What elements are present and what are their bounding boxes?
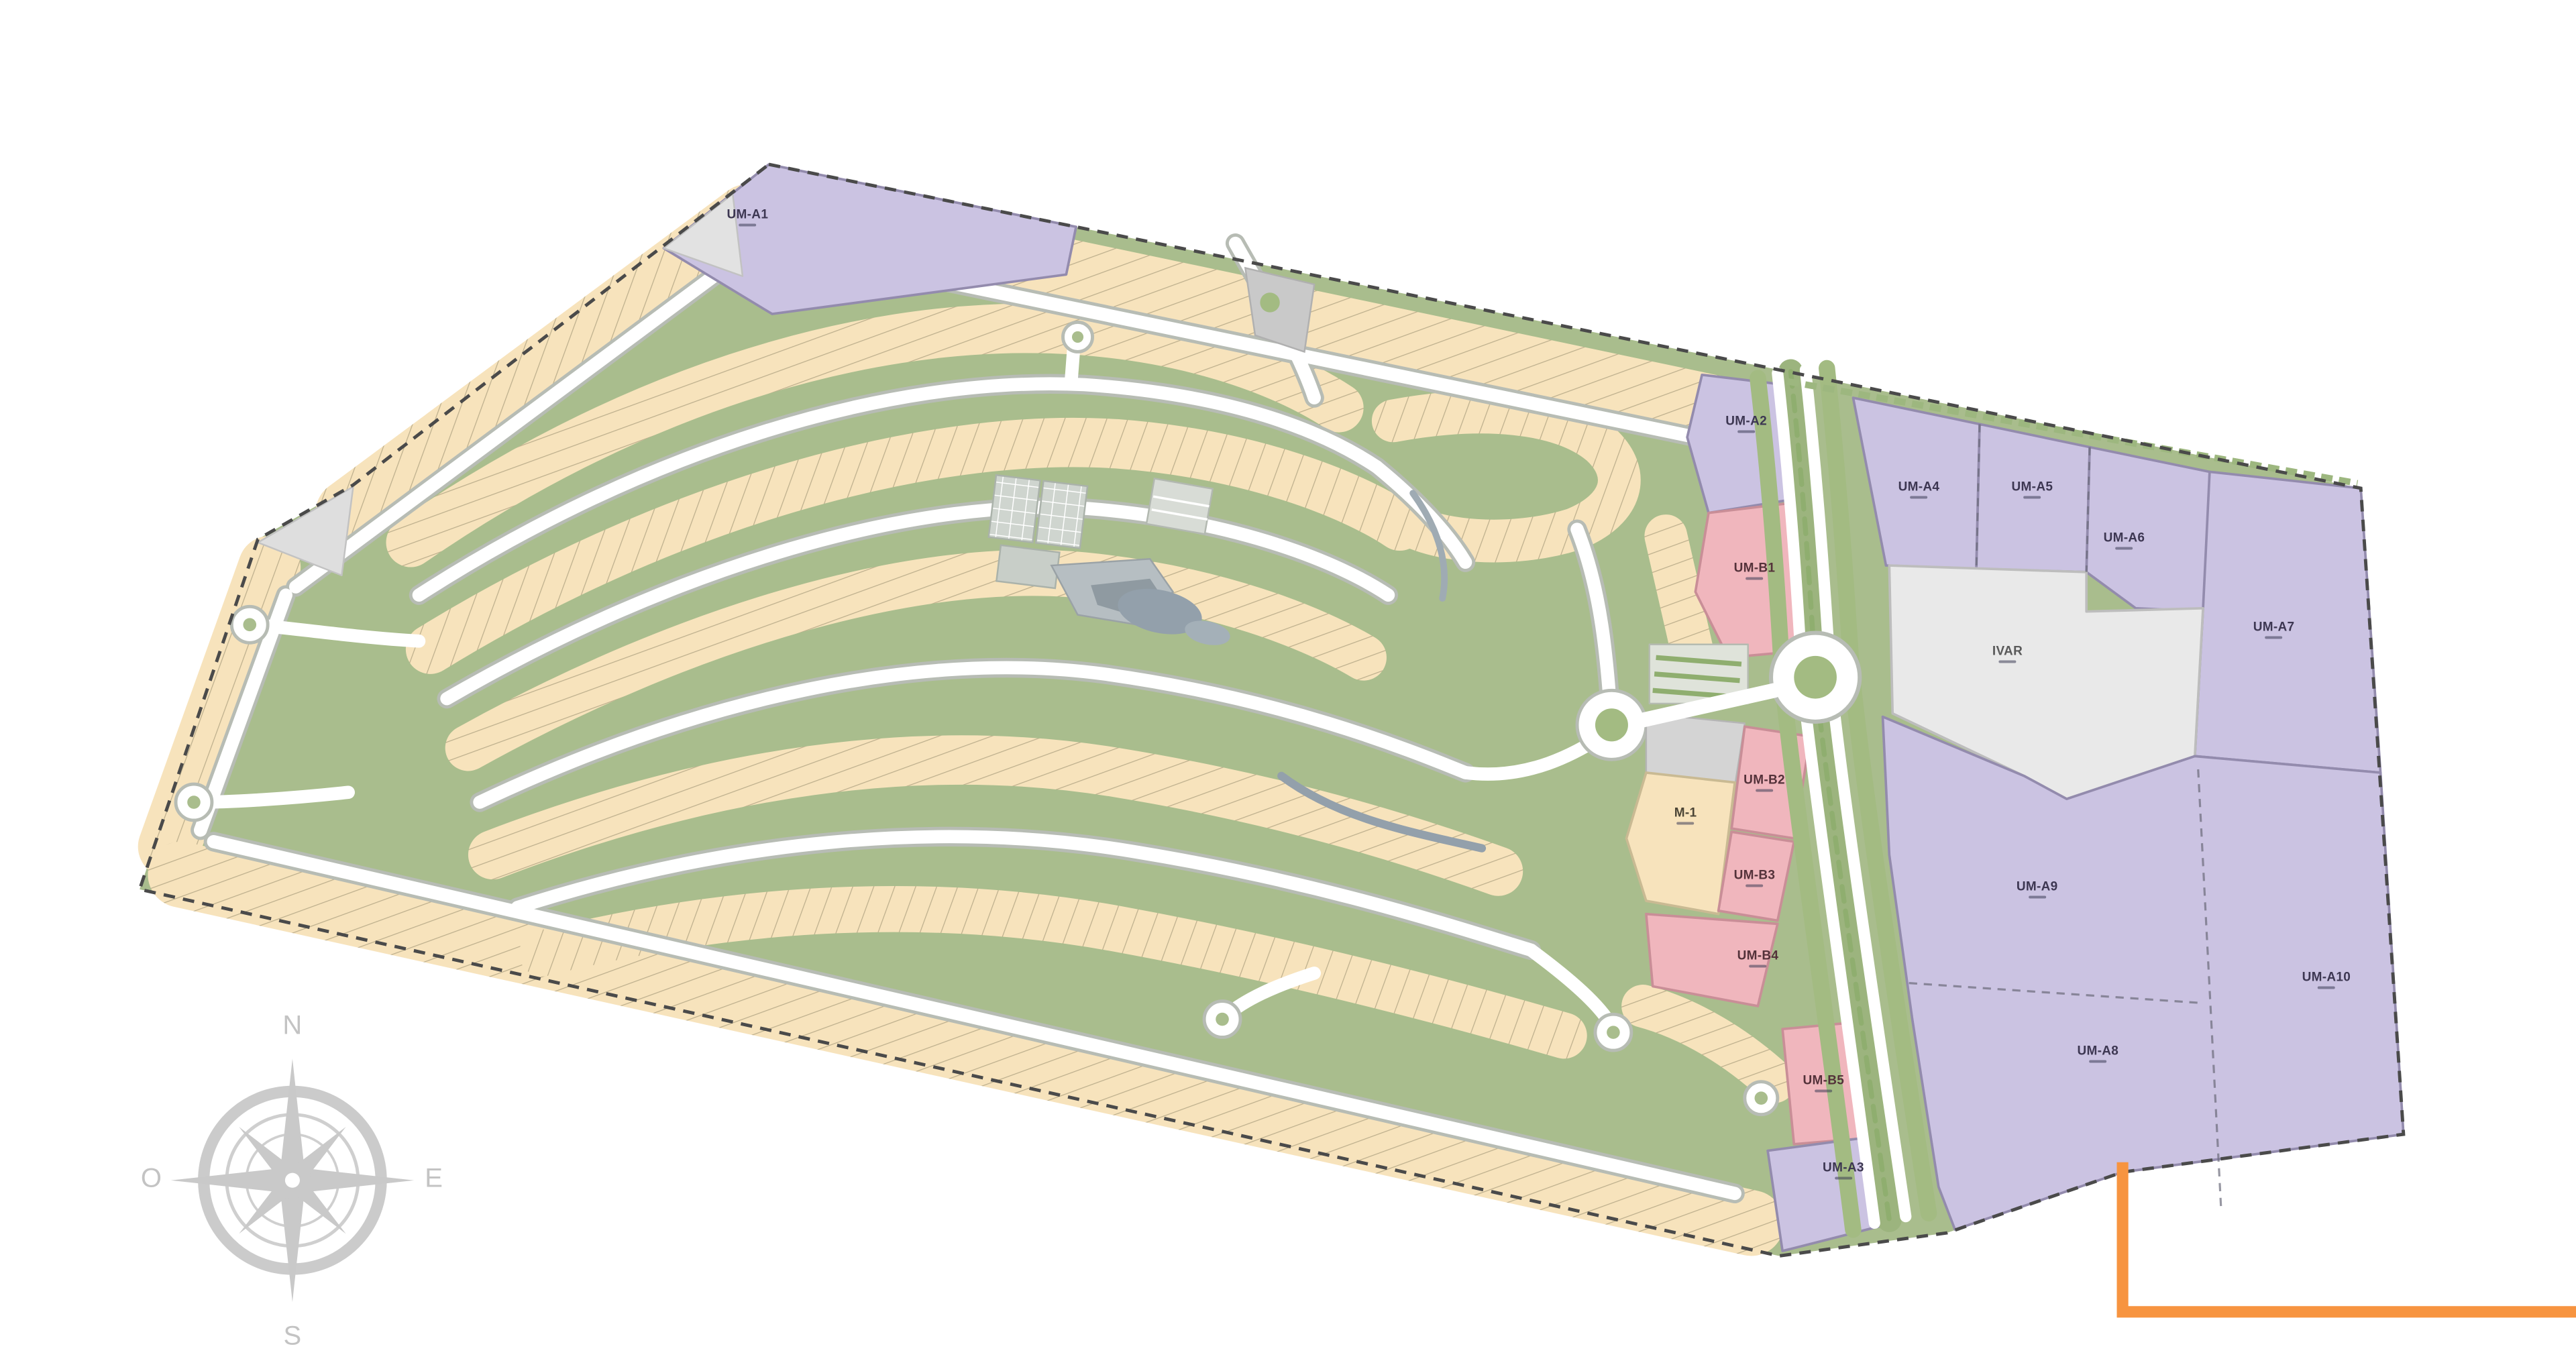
parking-area-north xyxy=(1146,478,1213,534)
orange-callout-line xyxy=(2123,1162,2576,1312)
parcel-m1 xyxy=(1626,773,1735,914)
parcel-um-a7 xyxy=(2195,472,2381,773)
roundabout-east xyxy=(1771,633,1860,722)
roundabout-west xyxy=(1577,690,1646,759)
master-plan-canvas: UM-A1 UM-A2 UM-B1 UM-A4 UM-A5 UM-A6 UM-A… xyxy=(0,0,2576,1371)
parcel-um-a8-a9-a10 xyxy=(1883,717,2404,1230)
parcel-um-a6 xyxy=(2086,447,2210,612)
parcel-um-a5 xyxy=(1976,424,2090,572)
compass-rose xyxy=(171,1058,414,1302)
site-plan-svg xyxy=(0,0,2576,1371)
